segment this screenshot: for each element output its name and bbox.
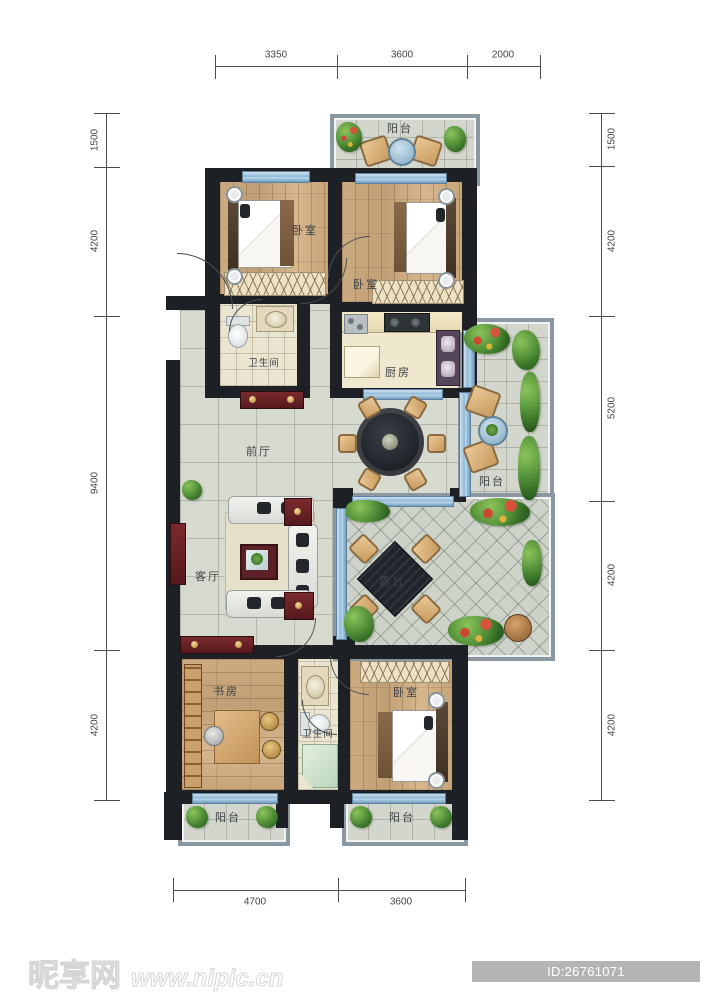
dim-tick bbox=[338, 878, 339, 902]
dim-tick bbox=[589, 800, 615, 801]
plant bbox=[346, 500, 390, 522]
terrace-label: 露台 bbox=[379, 573, 405, 589]
plant bbox=[444, 126, 466, 152]
plant bbox=[344, 606, 374, 642]
dim-tick bbox=[94, 167, 120, 168]
dim-tick bbox=[589, 166, 615, 167]
watermark-url: www.nipic.cn bbox=[131, 965, 283, 993]
dining-chair bbox=[427, 434, 446, 453]
wall bbox=[166, 645, 182, 800]
dim-tick bbox=[337, 55, 338, 79]
balcony-bottom-left-label: 阳台 bbox=[215, 809, 241, 825]
dim-bottom-2: 3600 bbox=[390, 897, 412, 908]
plant bbox=[186, 806, 208, 828]
dim-tick bbox=[589, 501, 615, 502]
bathroom-upper-label: 卫生间 bbox=[248, 355, 280, 369]
wall bbox=[297, 304, 310, 398]
dim-tick bbox=[589, 113, 615, 114]
watermark-id-badge: ID:26761071 NO:20200617165258955000 bbox=[472, 961, 700, 982]
plant bbox=[522, 540, 542, 586]
wardrobe bbox=[360, 661, 450, 683]
bedside-lamp bbox=[226, 268, 243, 285]
wall bbox=[284, 652, 298, 798]
dim-line-left bbox=[106, 113, 107, 800]
dim-tick bbox=[173, 878, 174, 902]
plant bbox=[448, 616, 504, 646]
dim-tick bbox=[589, 650, 615, 651]
bedroom-top-left-label: 卧室 bbox=[292, 222, 318, 238]
coffee-table bbox=[240, 544, 278, 580]
dim-right-5: 4200 bbox=[607, 714, 618, 736]
dim-tick bbox=[215, 55, 216, 79]
watermark: 昵享网 www.nipic.cn bbox=[28, 950, 283, 993]
dim-left-2: 4200 bbox=[90, 230, 101, 252]
dim-left-3: 9400 bbox=[90, 472, 101, 494]
dim-top-3: 2000 bbox=[492, 50, 514, 61]
dim-line-bottom bbox=[173, 890, 465, 891]
bedside-lamp bbox=[438, 272, 455, 289]
window bbox=[192, 793, 278, 804]
balcony-right-label: 阳台 bbox=[479, 473, 505, 489]
kitchen-label: 厨房 bbox=[385, 364, 411, 380]
plant bbox=[512, 330, 540, 370]
dim-top-1: 3350 bbox=[265, 50, 287, 61]
side-table bbox=[284, 592, 314, 620]
bedside-lamp bbox=[428, 772, 445, 789]
dim-tick bbox=[94, 113, 120, 114]
dim-tick bbox=[94, 316, 120, 317]
balcony-bottom-right-label: 阳台 bbox=[389, 809, 415, 825]
plant bbox=[182, 480, 202, 500]
dim-right-3: 5200 bbox=[607, 397, 618, 419]
bed-pillow bbox=[240, 204, 250, 218]
dim-tick bbox=[467, 55, 468, 79]
window bbox=[352, 793, 446, 804]
plant bbox=[336, 122, 362, 152]
bed-pillow bbox=[424, 716, 433, 730]
bed-pillow bbox=[436, 208, 445, 222]
plant bbox=[470, 498, 530, 526]
floor-plan-page: 3350 3600 2000 4700 3600 1500 4200 9400 … bbox=[0, 0, 708, 993]
wall bbox=[452, 645, 468, 800]
window bbox=[242, 171, 310, 183]
wall bbox=[164, 792, 182, 840]
plant bbox=[350, 806, 372, 828]
front-hall-label: 前厅 bbox=[246, 443, 272, 459]
kitchen-cabinet bbox=[344, 346, 380, 378]
plant bbox=[518, 436, 540, 500]
bedside-lamp bbox=[428, 692, 445, 709]
dim-tick bbox=[94, 800, 120, 801]
guest-chair bbox=[260, 712, 279, 731]
dim-top-2: 3600 bbox=[391, 50, 413, 61]
dining-chair bbox=[338, 434, 357, 453]
dim-left-4: 4200 bbox=[90, 714, 101, 736]
dim-tick bbox=[465, 878, 466, 902]
terrace-side-table bbox=[504, 614, 532, 642]
console-table bbox=[240, 391, 304, 409]
bathroom-lower-label: 卫生间 bbox=[302, 726, 334, 740]
plant bbox=[464, 324, 510, 354]
bed-headboard bbox=[228, 198, 238, 270]
dim-right-4: 4200 bbox=[607, 564, 618, 586]
balcony-table bbox=[478, 416, 508, 446]
sliding-door bbox=[355, 173, 447, 184]
wall bbox=[452, 792, 468, 840]
balcony-table bbox=[388, 138, 416, 166]
bedside-lamp bbox=[438, 188, 455, 205]
dim-right-1: 1500 bbox=[607, 128, 618, 150]
tv-cabinet bbox=[170, 523, 186, 585]
plant bbox=[430, 806, 452, 828]
bed-headboard bbox=[436, 702, 448, 782]
bedroom-top-right-label: 卧室 bbox=[353, 276, 379, 292]
wall bbox=[166, 360, 180, 653]
dim-bottom-1: 4700 bbox=[244, 897, 266, 908]
bed-headboard bbox=[446, 198, 456, 278]
guest-chair bbox=[262, 740, 281, 759]
balcony-top-label: 阳台 bbox=[387, 120, 413, 136]
watermark-logo: 昵享网 bbox=[28, 950, 121, 993]
dim-line-top bbox=[215, 66, 540, 67]
dim-tick bbox=[540, 55, 541, 79]
dim-left-1: 1500 bbox=[90, 129, 101, 151]
bookshelf bbox=[184, 664, 202, 788]
dim-tick bbox=[94, 650, 120, 651]
wall bbox=[330, 792, 344, 828]
desk-chair bbox=[204, 726, 224, 746]
kitchen-appliance bbox=[344, 314, 368, 334]
dim-tick bbox=[589, 316, 615, 317]
dim-line-right bbox=[601, 113, 602, 800]
bedroom-bottom-right-label: 卧室 bbox=[393, 684, 419, 700]
living-room-label: 客厅 bbox=[195, 568, 221, 584]
console-table bbox=[180, 636, 254, 654]
wall bbox=[330, 302, 342, 398]
study-label: 书房 bbox=[213, 683, 239, 699]
dim-right-2: 4200 bbox=[607, 230, 618, 252]
stove bbox=[384, 313, 430, 332]
plant bbox=[520, 372, 540, 432]
side-table bbox=[284, 498, 312, 526]
bedside-lamp bbox=[226, 186, 243, 203]
kitchen-sink bbox=[436, 330, 460, 386]
plant bbox=[256, 806, 278, 828]
